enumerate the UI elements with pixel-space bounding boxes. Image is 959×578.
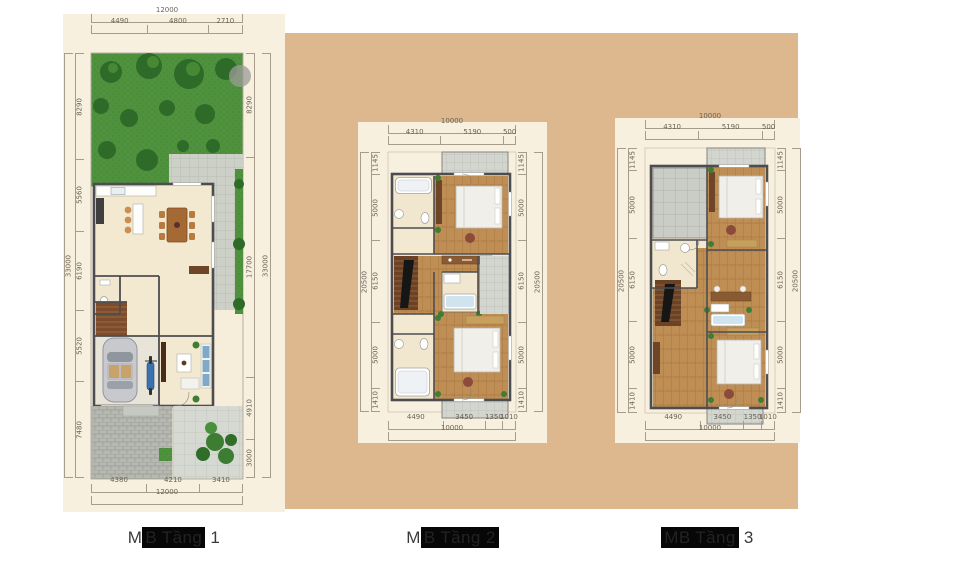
bed-icon: [454, 328, 500, 372]
dim-value: 1010: [759, 414, 777, 421]
stool-icon: [125, 207, 132, 234]
dim-value: 10000: [699, 113, 721, 120]
dim-value: 10000: [441, 425, 463, 432]
plant-icon: [501, 391, 507, 397]
paver-driveway: [92, 406, 173, 479]
caption-text: 3: [739, 528, 754, 547]
dim-value: 3450: [714, 414, 732, 421]
dim-left-total: 20500: [617, 148, 626, 413]
staircase: [96, 302, 127, 336]
dim-value: 10000: [441, 118, 463, 125]
dim-right-segments: 8290 17700 4910 3000: [246, 53, 255, 478]
front-step: [123, 406, 159, 416]
dim-right-total: 33000: [262, 53, 271, 478]
plant-icon: [193, 342, 200, 349]
dim-value: 4310: [663, 124, 681, 131]
dim-right-segments: 1145 5000 6150 5000 1410: [777, 148, 786, 413]
caption-highlight: MB Tầng: [661, 527, 738, 548]
dim-value: 1145: [778, 151, 785, 169]
cabinet: [653, 342, 660, 374]
dim-value: 33000: [66, 254, 73, 276]
dim-value: 3410: [212, 477, 230, 484]
dim-top-segments: 4310 5190 500: [645, 131, 775, 140]
toilet-icon: [659, 265, 667, 276]
tv-cabinet: [161, 342, 166, 382]
bathroom-rear: [394, 334, 434, 400]
roof-terrace: [653, 168, 707, 238]
dim-value: 500: [503, 129, 516, 136]
plant-icon: [435, 391, 441, 397]
dim-value: 8290: [247, 96, 254, 114]
table-decor: [182, 361, 187, 366]
dim-value: 5520: [77, 337, 84, 355]
dim-value: 5000: [519, 346, 526, 364]
wardrobe: [436, 180, 442, 224]
dim-value: 20500: [362, 271, 369, 293]
dim-value: 1145: [373, 155, 380, 173]
dim-value: 3450: [455, 414, 473, 421]
dim-value: 6150: [778, 271, 785, 289]
plant-icon: [708, 397, 714, 403]
wc-sink-icon: [100, 280, 110, 285]
centerpiece: [174, 222, 180, 228]
bed-icon: [717, 340, 761, 384]
dim-value: 4910: [247, 399, 254, 417]
dim-left-total: 33000: [64, 53, 73, 478]
washbasin-icon: [711, 304, 729, 312]
dim-value: 4210: [164, 477, 182, 484]
dim-value: 5000: [630, 196, 637, 214]
floorplan-panel-2: 10000 4310 5190 500 4490 3450 1350 1010 …: [358, 122, 547, 443]
dim-right-total: 20500: [534, 152, 543, 412]
dim-right-segments: 1145 5000 6150 5000 1410: [518, 152, 527, 412]
dim-value: 4800: [169, 18, 187, 25]
dim-value: 4380: [110, 477, 128, 484]
dim-bottom-total: 12000: [91, 496, 243, 505]
dim-value: 1145: [519, 155, 526, 173]
caption-text: M: [128, 528, 143, 547]
garage: [96, 336, 159, 406]
side-terrace: [480, 256, 510, 314]
floorplan-sheet: { "page": { "background": "#ffffff", "ca…: [0, 0, 959, 578]
plant-icon: [435, 175, 441, 181]
dim-value: 1410: [519, 391, 526, 409]
dim-value: 17700: [247, 256, 254, 278]
dim-value: 4490: [111, 18, 129, 25]
caption-highlight: B Tầng: [142, 527, 205, 548]
dim-value: 1410: [630, 392, 637, 410]
middle-bathroom: [438, 272, 482, 317]
sink-icon: [111, 188, 125, 195]
plant-icon: [708, 241, 714, 247]
dim-value: 12000: [156, 7, 178, 14]
plant-icon: [193, 396, 200, 403]
dim-value: 1410: [778, 392, 785, 410]
rug-icon: [463, 377, 473, 387]
dim-value: 12000: [156, 489, 178, 496]
side-walk: [213, 188, 235, 310]
bathroom-front: [394, 176, 434, 228]
dim-value: 20500: [619, 269, 626, 291]
dim-value: 6150: [373, 272, 380, 290]
dim-value: 5190: [463, 129, 481, 136]
dim-left-segments: 8290 5560 6190 5520 7480: [75, 53, 84, 478]
dim-value: 6190: [77, 262, 84, 280]
dim-value: 33000: [263, 254, 270, 276]
vanity-icon: [444, 274, 460, 283]
bench-mat: [466, 316, 504, 324]
floorplan-panel-3: 10000 4310 5190 500 4490 3450 1350 1010 …: [615, 118, 800, 443]
dim-value: 4490: [407, 414, 425, 421]
kitchen-counter: [96, 186, 156, 196]
chair-icon: [714, 286, 720, 292]
plant-icon: [708, 333, 714, 339]
dim-value: 1010: [500, 414, 518, 421]
dim-bottom-total: 10000: [388, 432, 516, 441]
dim-top-segments: 4490 4800 2710: [91, 25, 243, 34]
sink-icon: [395, 210, 404, 219]
dim-value: 5000: [630, 346, 637, 364]
dim-value: 7480: [77, 421, 84, 439]
plant-icon: [435, 227, 441, 233]
kitchen-island: [133, 204, 143, 234]
sink-icon: [395, 340, 404, 349]
dim-value: 1145: [630, 151, 637, 169]
tall-cabinet: [96, 198, 104, 224]
sink-icon: [681, 244, 690, 253]
bed-icon: [456, 186, 502, 228]
dim-value: 4310: [406, 129, 424, 136]
dim-value: 5000: [373, 199, 380, 217]
floorplan-panel-1: 12000 4490 4800 2710 4380 4210 3410 1200…: [63, 14, 285, 512]
rug-icon: [724, 389, 734, 399]
bench-mat: [727, 240, 757, 247]
dim-left-total: 20500: [360, 152, 369, 412]
toilet-icon: [421, 213, 429, 224]
plant-icon: [435, 315, 441, 321]
caption-highlight: B Tầng 2: [421, 527, 499, 548]
plant-icon: [758, 397, 764, 403]
rug-icon: [465, 233, 475, 243]
staircase: [394, 256, 418, 310]
chair-icon: [740, 286, 746, 292]
rug-icon: [726, 225, 736, 235]
floorplan-drawing-3: [615, 118, 800, 443]
front-balcony: [707, 148, 765, 166]
dim-value: 20500: [793, 269, 800, 291]
dim-value: 5000: [373, 346, 380, 364]
dim-value: 1410: [373, 391, 380, 409]
wardrobe: [709, 172, 715, 212]
caption-text: 1: [205, 528, 220, 547]
dim-value: 8290: [77, 98, 84, 116]
dim-bottom-total: 10000: [645, 432, 775, 441]
dim-value: 6150: [630, 271, 637, 289]
plant-icon: [708, 167, 714, 173]
toilet-icon: [420, 339, 428, 350]
caption-floor-2: MB Tầng 2: [358, 528, 547, 552]
dim-value: 2710: [216, 18, 234, 25]
caption-text: M: [406, 528, 421, 547]
dim-value: 5000: [778, 346, 785, 364]
dim-value: 5190: [722, 124, 740, 131]
car-icon: [103, 338, 137, 402]
staircase: [655, 280, 681, 326]
caption-floor-3: MB Tầng 3: [615, 528, 800, 552]
dim-value: 5560: [77, 186, 84, 204]
dim-value: 4490: [664, 414, 682, 421]
lawn-square: [159, 448, 172, 461]
dim-right-total: 20500: [792, 148, 801, 413]
vanity-icon: [655, 242, 669, 250]
dim-left-segments: 1145 5000 6150 5000 1410: [628, 148, 637, 413]
caption-floor-1: MB Tầng 1: [63, 528, 285, 552]
front-balcony: [442, 152, 508, 174]
dim-value: 5000: [519, 199, 526, 217]
dim-top-segments: 4310 5190 500: [388, 136, 516, 145]
dim-value: 3000: [247, 449, 254, 467]
dim-value: 6150: [519, 272, 526, 290]
dim-value: 20500: [535, 271, 542, 293]
dim-left-segments: 1145 5000 6150 5000 1410: [371, 152, 380, 412]
dim-value: 10000: [699, 425, 721, 432]
dim-value: 500: [762, 124, 775, 131]
bed-icon: [719, 176, 763, 218]
dim-value: 5000: [778, 196, 785, 214]
plant-icon: [746, 307, 752, 313]
sideboard: [189, 266, 209, 274]
